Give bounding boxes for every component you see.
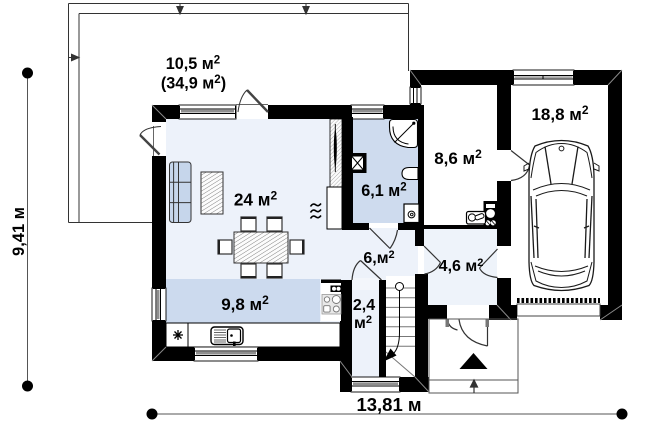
- svg-text:6,1 м2: 6,1 м2: [361, 182, 406, 201]
- svg-text:2,4: 2,4: [353, 297, 375, 314]
- svg-text:18,8 м2: 18,8 м2: [531, 103, 588, 124]
- svg-text:8,6 м2: 8,6 м2: [434, 147, 482, 168]
- svg-text:13,81 м: 13,81 м: [356, 394, 421, 415]
- svg-text:9,8 м2: 9,8 м2: [221, 293, 269, 314]
- svg-text:10,5 м2: 10,5 м2: [166, 55, 220, 74]
- svg-text:4,6 м2: 4,6 м2: [439, 257, 484, 275]
- svg-text:9,41 м: 9,41 м: [10, 207, 28, 256]
